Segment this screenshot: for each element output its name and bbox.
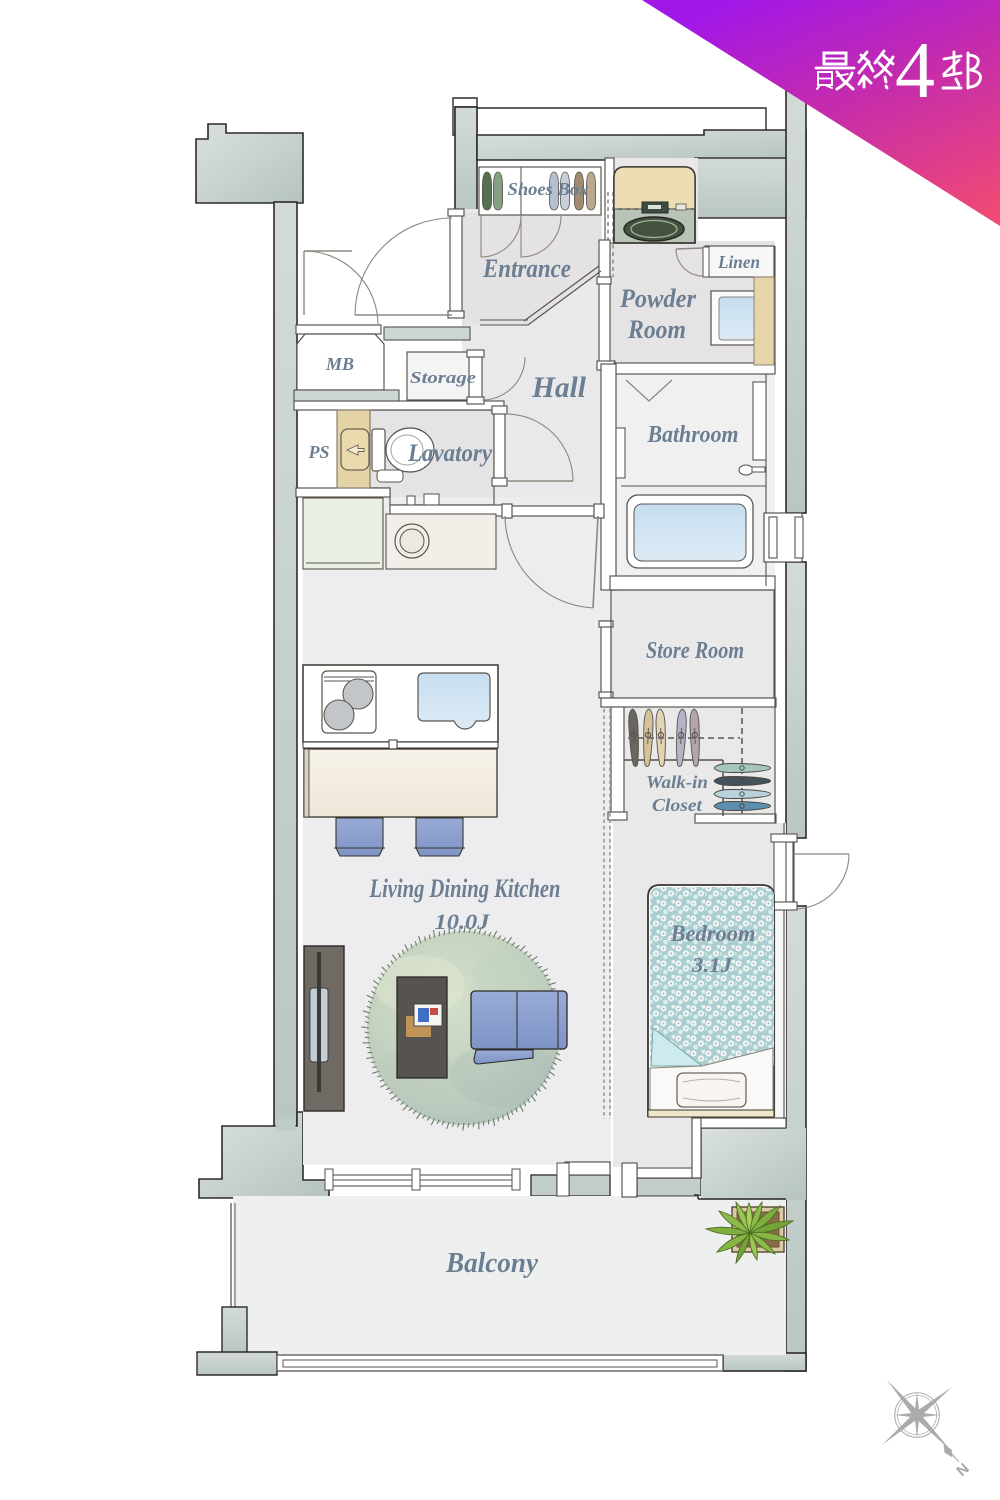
svg-text:Shoes Box: Shoes Box <box>508 179 589 199</box>
svg-text:Bathroom: Bathroom <box>647 422 739 448</box>
svg-text:Walk-in: Walk-in <box>646 772 708 792</box>
svg-text:4: 4 <box>895 27 935 115</box>
svg-text:Bedroom: Bedroom <box>670 921 756 946</box>
svg-text:MB: MB <box>325 354 354 374</box>
svg-text:Store Room: Store Room <box>646 638 744 664</box>
svg-text:Closet: Closet <box>652 795 703 815</box>
svg-text:Linen: Linen <box>717 252 760 272</box>
svg-text:10.0J: 10.0J <box>435 909 491 934</box>
svg-text:Storage: Storage <box>410 368 477 387</box>
svg-text:3.1J: 3.1J <box>691 953 734 977</box>
svg-text:PS: PS <box>307 442 329 462</box>
svg-text:Room: Room <box>627 315 686 344</box>
svg-text:Entrance: Entrance <box>482 254 571 283</box>
svg-text:Powder: Powder <box>619 284 697 313</box>
svg-text:Lavatory: Lavatory <box>407 440 493 467</box>
svg-text:Hall: Hall <box>531 371 587 404</box>
svg-text:Balcony: Balcony <box>445 1248 539 1279</box>
svg-text:Living Dining Kitchen: Living Dining Kitchen <box>369 874 561 903</box>
